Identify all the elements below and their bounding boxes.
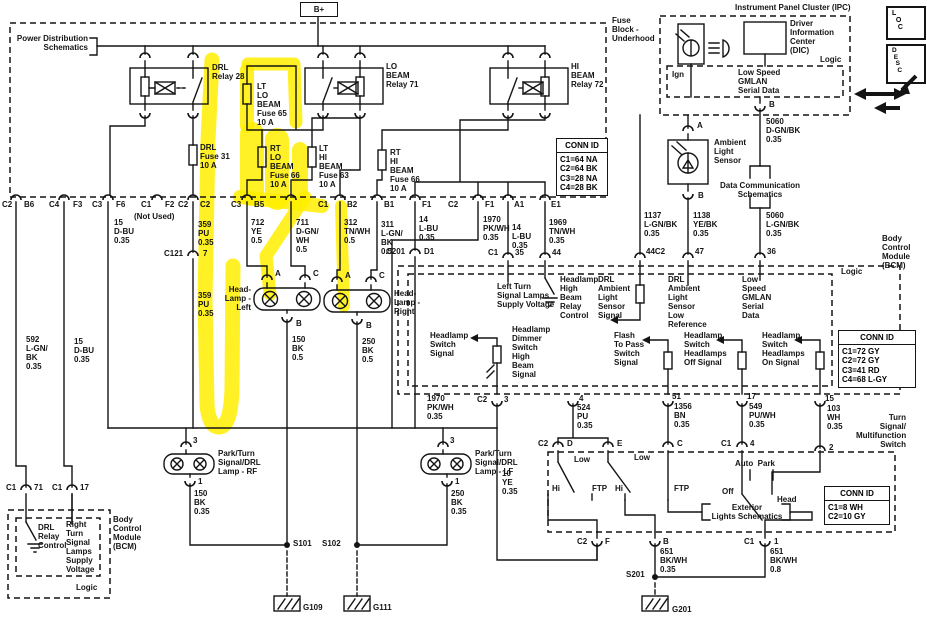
ts-pin-c: C bbox=[677, 440, 683, 449]
hl-pin-a: A bbox=[275, 270, 281, 279]
row-b6: B6 bbox=[24, 201, 34, 210]
wire-15b-label: 15 D-BU 0.35 bbox=[74, 338, 94, 365]
rf-pin-3: 3 bbox=[193, 437, 197, 446]
park-lf-label: Park/Turn Signal/DRL Lamp - LF bbox=[475, 450, 518, 477]
eb-pin-1: 1 bbox=[774, 538, 778, 547]
hr-pin-a: A bbox=[345, 272, 351, 281]
ts-pin-c1: C1 bbox=[721, 440, 731, 449]
ts-off-label: Off bbox=[722, 488, 734, 497]
hr-pin-c: C bbox=[379, 272, 385, 281]
conn-id-title-1: CONN ID bbox=[557, 139, 607, 153]
wire-150b-label: 150 BK 0.35 bbox=[194, 490, 210, 517]
hl-pin-c: C bbox=[313, 270, 319, 279]
row-f1b: F1 bbox=[485, 201, 494, 210]
wire-1138-label: 1138 YE/BK 0.35 bbox=[693, 212, 717, 239]
row-b1: B1 bbox=[384, 201, 394, 210]
row-f3: F3 bbox=[73, 201, 82, 210]
row-c3b: C3 bbox=[231, 201, 241, 210]
pin-d1: D1 bbox=[424, 248, 434, 257]
splice-s101-label: S101 bbox=[293, 540, 312, 549]
conn-id-title-3: CONN ID bbox=[825, 487, 889, 501]
conn-id-rows-fuse-block: C1=64 NA C2=64 BK C3=28 NA C4=28 BK bbox=[557, 153, 607, 195]
desc-badge: D E S C bbox=[886, 44, 926, 84]
wire-651b-label: 651 BK/WH 0.8 bbox=[770, 548, 797, 575]
wire-14a-label: 14 L-BU 0.35 bbox=[419, 216, 438, 243]
lb-pin-c1b: C1 bbox=[52, 484, 62, 493]
fuse-block-label: Fuse Block - Underhood bbox=[612, 17, 655, 44]
drl-relay-label: DRL Relay 28 bbox=[212, 64, 244, 82]
conn-id-title-2: CONN ID bbox=[839, 331, 915, 345]
ambient-pin-a: A bbox=[697, 122, 703, 131]
wire-15a-label: 15 D-BU 0.35 bbox=[114, 219, 134, 246]
bcm-hhbrc-label: Headlamp High Beam Relay Control bbox=[560, 276, 598, 321]
fuse-rt-lo-label: RT LO BEAM Fuse 66 10 A bbox=[270, 145, 300, 190]
lb-logic-label: Logic bbox=[76, 584, 97, 593]
lf-pin-1: 1 bbox=[455, 478, 459, 487]
wire-359a-label: 359 PU 0.35 bbox=[198, 221, 214, 248]
row-c4: C4 bbox=[49, 201, 59, 210]
wire-5060a-label: 5060 D-GN/BK 0.35 bbox=[766, 118, 800, 145]
park-rf-label: Park/Turn Signal/DRL Lamp - RF bbox=[218, 450, 261, 477]
wire-524-label: 524 PU 0.35 bbox=[577, 404, 593, 431]
pin-c201: C201 bbox=[386, 248, 405, 257]
row-c2b: C2 bbox=[178, 201, 188, 210]
bplus-label: B+ bbox=[314, 5, 324, 14]
ipc-gmlan-label: Low Speed GMLAN Serial Data bbox=[738, 69, 780, 96]
ts-low1-label: Low bbox=[574, 456, 590, 465]
row-b2: B2 bbox=[347, 201, 357, 210]
headlamp-right-label: Head- Lamp - Right bbox=[394, 290, 420, 317]
pin-36: 36 bbox=[767, 248, 776, 257]
pin-47: 47 bbox=[695, 248, 704, 257]
eb-pin-c1: C1 bbox=[744, 538, 754, 547]
row-c2c: C2 bbox=[200, 201, 210, 210]
wire-711-label: 711 D-GN/ WH 0.5 bbox=[296, 219, 319, 255]
lb-pin-71: 71 bbox=[34, 484, 43, 493]
bcm-hs-on-label: Headlamp Switch Headlamps On Signal bbox=[762, 332, 805, 368]
lb-pin-c1a: C1 bbox=[6, 484, 16, 493]
dic-label: Driver Information Center (DIC) bbox=[790, 20, 834, 56]
bcm-logic-label: Logic bbox=[841, 268, 862, 277]
wire-592-label: 592 L-GN/ BK 0.35 bbox=[26, 336, 48, 372]
bcm-drl-als-lr-label: DRL Ambient Light Sensor Low Reference bbox=[668, 276, 707, 330]
bcm-drl-als-label: DRL Ambient Light Sensor Signal bbox=[598, 276, 630, 321]
wire-1969-label: 1969 TN/WH 0.35 bbox=[549, 219, 575, 246]
wire-549-label: 549 PU/WH 0.35 bbox=[749, 403, 776, 430]
row-f6: F6 bbox=[116, 201, 125, 210]
lb-name-label: Body Control Module (BCM) bbox=[113, 516, 141, 552]
row-c2a: C2 bbox=[2, 201, 12, 210]
wire-1356-label: 1356 BN 0.35 bbox=[674, 403, 692, 430]
wire-150a-label: 150 BK 0.5 bbox=[292, 336, 305, 363]
fuse-rt-hi-label: RT HI BEAM Fuse 66 10 A bbox=[390, 149, 420, 194]
ts-auto-park-label: Auto Park bbox=[735, 460, 775, 469]
pin-44c2: 44C2 bbox=[646, 248, 665, 257]
ts-ftp1-label: FTP bbox=[592, 485, 607, 494]
eb-pin-f: F bbox=[605, 538, 610, 547]
row-not-used: (Not Used) bbox=[134, 213, 174, 222]
ground-g109-label: G109 bbox=[303, 604, 323, 613]
bcm-pin-17: 17 bbox=[747, 393, 756, 402]
wiring-diagram-page: B+ Power Distribution Schematics Fuse Bl… bbox=[0, 0, 927, 638]
bcm-pin-3: 3 bbox=[504, 396, 508, 405]
lb-rt-supply-label: Right Turn Signal Lamps Supply Voltage bbox=[66, 521, 94, 575]
wire-359b-label: 359 PU 0.35 bbox=[198, 292, 214, 319]
ts-pin-e: E bbox=[617, 440, 622, 449]
bcm-pin-51: 51 bbox=[672, 393, 681, 402]
wire-1137-label: 1137 L-GN/BK 0.35 bbox=[644, 212, 677, 239]
ground-g201-label: G201 bbox=[672, 606, 692, 615]
pin-c121-7: 7 bbox=[203, 250, 207, 259]
bcm-ftp-label: Flash To Pass Switch Signal bbox=[614, 332, 644, 368]
ts-hi2-label: Hi bbox=[615, 485, 623, 494]
power-distribution-label: Power Distribution Schematics bbox=[12, 35, 88, 53]
ipc-title: Instrument Panel Cluster (IPC) bbox=[735, 4, 851, 13]
wire-14b-label: 14 L-BU 0.35 bbox=[512, 224, 531, 251]
ts-pin-c2: C2 bbox=[538, 440, 548, 449]
conn-id-bcm: CONN ID C1=72 GY C2=72 GY C3=41 RD C4=68… bbox=[838, 330, 916, 388]
row-c1b: C1 bbox=[318, 201, 328, 210]
pin-c121: C121 bbox=[164, 250, 183, 259]
ign-label: Ign bbox=[672, 71, 684, 80]
row-e1: E1 bbox=[551, 201, 561, 210]
row-f2: F2 bbox=[165, 201, 174, 210]
row-f1a: F1 bbox=[422, 201, 431, 210]
ipc-logic-label: Logic bbox=[820, 56, 841, 65]
ts-hi1-label: Hi bbox=[552, 485, 560, 494]
row-c2d: C2 bbox=[448, 201, 458, 210]
wire-103-label: 103 WH 0.35 bbox=[827, 405, 843, 432]
conn-id-fuse-block: CONN ID C1=64 NA C2=64 BK C3=28 NA C4=28… bbox=[556, 138, 608, 196]
pin-35: 35 bbox=[515, 249, 524, 258]
bcm-name-label: Body Control Module (BCM) bbox=[882, 235, 910, 271]
splice-s201-label: S201 bbox=[626, 571, 645, 580]
datacomm-label: Data Communication Schematics bbox=[702, 182, 818, 200]
bcm-dimmer-label: Headlamp Dimmer Switch High Beam Signal bbox=[512, 326, 550, 380]
ipc-pin-b: B bbox=[769, 101, 775, 110]
rf-pin-1: 1 bbox=[198, 478, 202, 487]
ts-ftp2-label: FTP bbox=[674, 485, 689, 494]
fuse-drl-label: DRL Fuse 31 10 A bbox=[200, 144, 230, 171]
eb-pin-c2: C2 bbox=[577, 538, 587, 547]
splice-s102-label: S102 bbox=[322, 540, 341, 549]
wire-1970a-label: 1970 PK/WH 0.35 bbox=[483, 216, 510, 243]
eb-pin-b: B bbox=[663, 538, 669, 547]
wire-651a-label: 651 BK/WH 0.35 bbox=[660, 548, 687, 575]
fuse-lt-lo-label: LT LO BEAM Fuse 65 10 A bbox=[257, 83, 287, 128]
row-a1: A1 bbox=[514, 201, 524, 210]
wire-250b-label: 250 BK 0.35 bbox=[451, 490, 467, 517]
lf-pin-3: 3 bbox=[450, 437, 454, 446]
row-c3a: C3 bbox=[92, 201, 102, 210]
wire-250a-label: 250 BK 0.5 bbox=[362, 338, 375, 365]
wire-1970b-label: 1970 PK/WH 0.35 bbox=[427, 395, 454, 422]
conn-id-tsmfs: CONN ID C1=8 WH C2=10 GY bbox=[824, 486, 890, 525]
wire-312-label: 312 TN/WH 0.5 bbox=[344, 219, 370, 246]
ambient-sensor-label: Ambient Light Sensor bbox=[714, 139, 746, 166]
row-c1a: C1 bbox=[141, 201, 151, 210]
bcm-hss-label: Headlamp Switch Signal bbox=[430, 332, 468, 359]
lb-pin-17: 17 bbox=[80, 484, 89, 493]
ts-pin-2: 2 bbox=[829, 444, 833, 453]
conn-id-rows-bcm: C1=72 GY C2=72 GY C3=41 RD C4=68 L-GY bbox=[839, 345, 915, 387]
fuse-lt-hi-label: LT HI BEAM Fuse 63 10 A bbox=[319, 145, 349, 190]
headlamp-left-label: Head- Lamp - Left bbox=[219, 286, 251, 313]
hi-beam-relay-label: HI BEAM Relay 72 bbox=[571, 63, 603, 90]
ts-low2-label: Low bbox=[634, 454, 650, 463]
lo-beam-relay-label: LO BEAM Relay 71 bbox=[386, 63, 418, 90]
wire-712-label: 712 YE 0.5 bbox=[251, 219, 264, 246]
ts-pin-4: 4 bbox=[750, 440, 754, 449]
hl-pin-b: B bbox=[296, 320, 302, 329]
tsmfs-name-label: Turn Signal/ Multifunction Switch bbox=[856, 414, 906, 450]
hr-pin-b: B bbox=[366, 322, 372, 331]
wire-5060b-label: 5060 L-GN/BK 0.35 bbox=[766, 212, 799, 239]
bcm-pin-15: 15 bbox=[825, 395, 834, 404]
lb-drl-ctl-label: DRL Relay Control bbox=[38, 524, 66, 551]
ts-pin-d: D bbox=[567, 440, 573, 449]
loc-badge: L O C bbox=[886, 6, 926, 40]
row-b5: B5 bbox=[254, 201, 264, 210]
ground-g111-label: G111 bbox=[373, 604, 392, 613]
bcm-pin-c2: C2 bbox=[477, 396, 487, 405]
ext-lights-label: Exterior Lights Schematics bbox=[706, 504, 788, 522]
bcm-hs-off-label: Headlamp Switch Headlamps Off Signal bbox=[684, 332, 727, 368]
pin-c1-35-conn: C1 bbox=[488, 249, 498, 258]
bcm-gmlan-label: Low Speed GMLAN Serial Data bbox=[742, 276, 771, 321]
pin-44: 44 bbox=[552, 249, 561, 258]
bplus-box: B+ bbox=[300, 2, 338, 17]
bcm-lt-supply-label: Left Turn Signal Lamps Supply Voltage bbox=[497, 283, 554, 310]
conn-id-rows-tsmfs: C1=8 WH C2=10 GY bbox=[825, 501, 889, 524]
